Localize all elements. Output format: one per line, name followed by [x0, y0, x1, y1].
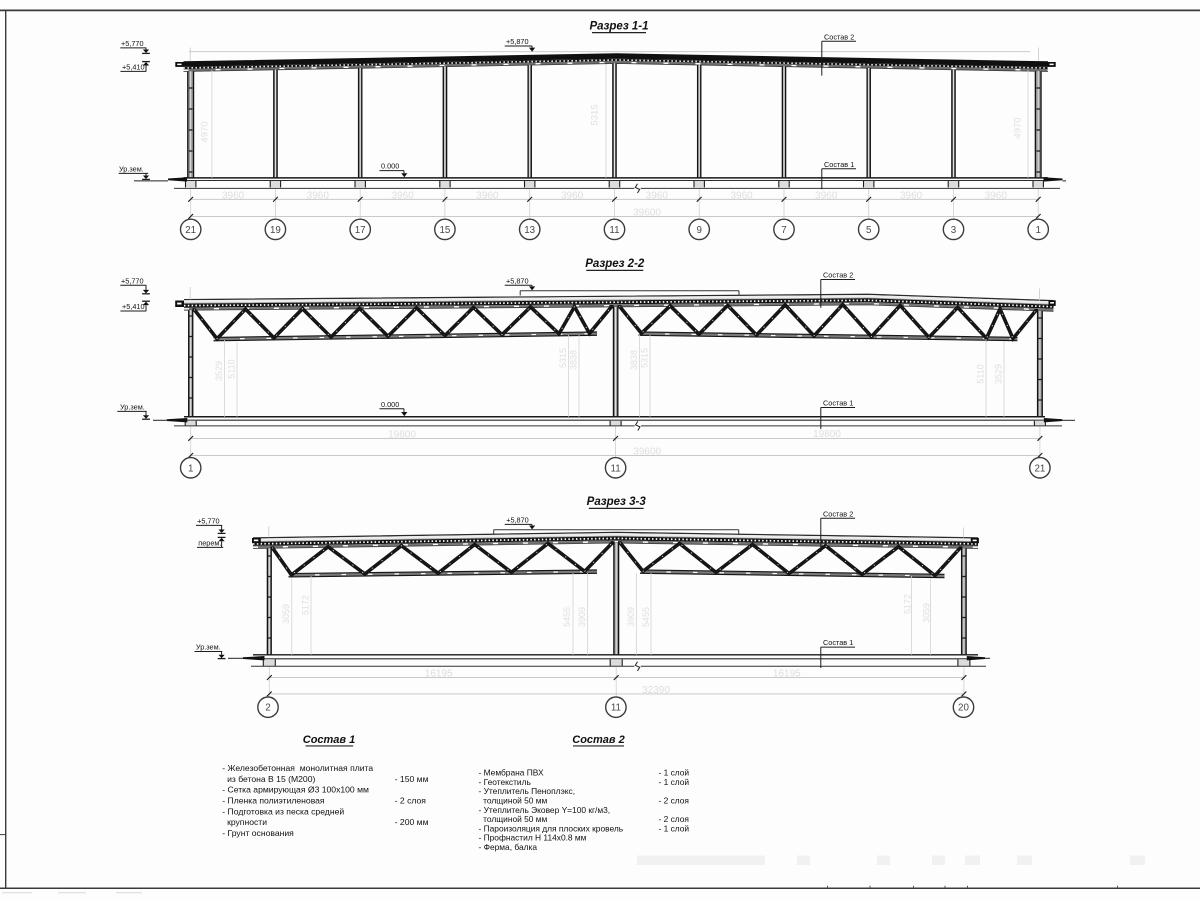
svg-text:+5,870: +5,870 [506, 515, 529, 524]
svg-text:3960: 3960 [730, 191, 753, 202]
svg-text:Состав 2: Состав 2 [823, 509, 853, 518]
svg-text:Ур.зем.: Ур.зем. [196, 643, 221, 652]
svg-text:5455: 5455 [562, 607, 572, 627]
svg-text:19800: 19800 [388, 429, 416, 440]
svg-text:- Пленка полиэтиленовая: - Пленка полиэтиленовая [222, 796, 325, 806]
svg-text:1: 1 [188, 463, 193, 474]
svg-text:3909: 3909 [626, 607, 636, 627]
svg-text:11: 11 [611, 703, 621, 714]
svg-text:17: 17 [355, 225, 366, 236]
svg-text:5110: 5110 [976, 364, 986, 383]
svg-text:+5,770: +5,770 [121, 276, 144, 285]
svg-text:3960: 3960 [646, 191, 669, 202]
svg-text:+5,770: +5,770 [197, 516, 220, 525]
svg-text:+5,870: +5,870 [506, 37, 529, 46]
svg-text:15: 15 [439, 225, 450, 236]
svg-text:11: 11 [609, 225, 619, 236]
svg-text:Состав 1: Состав 1 [823, 399, 853, 408]
svg-text:3960: 3960 [391, 191, 414, 202]
svg-text:3529: 3529 [994, 364, 1004, 384]
svg-text:2: 2 [265, 703, 270, 714]
svg-text:+5,410: +5,410 [122, 302, 145, 311]
svg-text:Разрез 2-2: Разрез 2-2 [585, 258, 645, 270]
svg-text:Состав 2: Состав 2 [823, 271, 853, 280]
svg-text:- Железобетонная монолитная п: - Железобетонная монолитная плита [222, 763, 373, 773]
svg-text:Состав 1: Состав 1 [303, 734, 356, 746]
svg-text:1: 1 [1035, 225, 1040, 236]
svg-text:4970: 4970 [1013, 117, 1024, 138]
svg-text:5172: 5172 [301, 595, 311, 615]
svg-text:3838: 3838 [569, 350, 579, 370]
svg-text:Состав 2: Состав 2 [572, 734, 625, 746]
svg-text:+5,770: +5,770 [121, 39, 144, 48]
svg-text:21: 21 [185, 225, 196, 236]
svg-text:19800: 19800 [813, 429, 841, 440]
svg-text:Разрез 3-3: Разрез 3-3 [587, 496, 647, 508]
svg-text:3059: 3059 [922, 603, 932, 623]
svg-text:+5,870: +5,870 [506, 276, 529, 285]
svg-text:3960: 3960 [476, 191, 499, 202]
svg-text:21: 21 [1034, 463, 1045, 474]
svg-text:5: 5 [866, 225, 872, 236]
svg-text:5172: 5172 [903, 594, 913, 614]
svg-text:5455: 5455 [641, 607, 651, 627]
svg-text:- 1 слой: - 1 слой [659, 823, 690, 833]
svg-text:7: 7 [781, 225, 786, 236]
svg-text:3059: 3059 [281, 604, 291, 624]
svg-text:3: 3 [951, 225, 957, 236]
svg-text:- 200 мм: - 200 мм [395, 817, 429, 827]
svg-text:- Подготовка из песка средней: - Подготовка из песка средней [222, 806, 344, 816]
svg-text:Разрез 1-1: Разрез 1-1 [589, 21, 648, 33]
svg-text:11: 11 [611, 463, 621, 474]
svg-text:- 1 слой: - 1 слой [659, 777, 690, 787]
svg-text:13: 13 [524, 225, 535, 236]
svg-text:39600: 39600 [633, 207, 661, 218]
svg-text:0.000: 0.000 [381, 400, 399, 409]
svg-text:16195: 16195 [425, 669, 453, 680]
svg-text:32390: 32390 [642, 685, 670, 696]
svg-text:Ур.зем.: Ур.зем. [119, 164, 144, 173]
svg-text:- Грунт основания: - Грунт основания [222, 828, 294, 838]
svg-text:0.000: 0.000 [381, 162, 399, 171]
svg-text:16195: 16195 [773, 668, 801, 679]
svg-text:- 2 слоя: - 2 слоя [395, 796, 427, 806]
svg-text:из бетона В 15 (М200): из бетона В 15 (М200) [222, 774, 315, 784]
svg-text:Состав 1: Состав 1 [823, 638, 853, 647]
svg-text:5315: 5315 [558, 348, 568, 368]
svg-text:3960: 3960 [815, 191, 838, 202]
svg-text:перем.: перем. [198, 538, 221, 547]
svg-text:39600: 39600 [633, 446, 661, 457]
svg-text:5315: 5315 [590, 104, 601, 125]
svg-text:5110: 5110 [226, 359, 236, 378]
svg-text:3960: 3960 [900, 191, 923, 202]
svg-text:Состав 2: Состав 2 [824, 32, 854, 41]
svg-text:- 2 слоя: - 2 слоя [659, 796, 689, 806]
svg-text:- 150 мм: - 150 мм [395, 774, 429, 784]
svg-text:3909: 3909 [577, 607, 587, 627]
svg-text:9: 9 [696, 225, 701, 236]
svg-text:3838: 3838 [629, 350, 639, 370]
svg-text:Ур.зем.: Ур.зем. [120, 402, 145, 411]
svg-text:+5,410: +5,410 [122, 62, 145, 71]
svg-text:5315: 5315 [640, 348, 650, 368]
svg-text:- Ферма, балка: - Ферма, балка [479, 842, 538, 852]
svg-text:3960: 3960 [561, 191, 584, 202]
svg-text:крупности: крупности [222, 817, 267, 827]
svg-text:Состав 1: Состав 1 [824, 160, 854, 169]
svg-text:- Сетка армирующая Ø3 100х100: - Сетка армирующая Ø3 100х100 мм [222, 785, 369, 795]
svg-text:3960: 3960 [985, 191, 1008, 202]
svg-text:3960: 3960 [222, 191, 245, 202]
svg-text:3529: 3529 [214, 361, 224, 381]
svg-text:3960: 3960 [307, 191, 330, 202]
svg-text:19: 19 [270, 225, 281, 236]
svg-text:20: 20 [958, 703, 969, 714]
svg-text:4970: 4970 [200, 121, 211, 142]
